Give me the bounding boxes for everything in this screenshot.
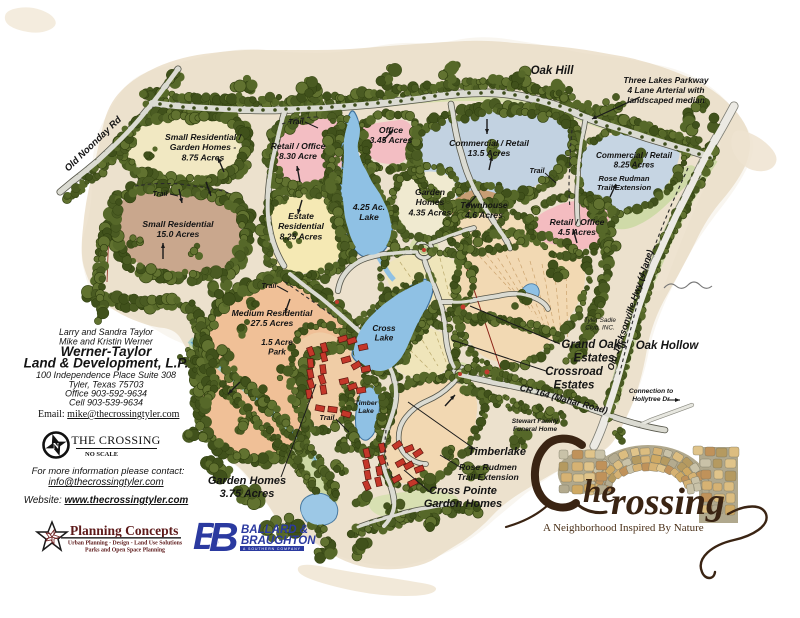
svg-text:NO SCALE: NO SCALE: [85, 451, 118, 458]
svg-text:N: N: [53, 441, 60, 451]
svg-text:Website: www.thecrossingtyler.: Website: www.thecrossingtyler.com: [24, 495, 189, 506]
svg-text:Trail: Trail: [288, 117, 304, 126]
svg-text:Townhouse4.6 Acres: Townhouse4.6 Acres: [460, 200, 508, 220]
svg-text:Tyler SadleClub, INC.: Tyler SadleClub, INC.: [584, 317, 616, 332]
svg-text:Trail: Trail: [529, 166, 545, 175]
svg-text:Planning Concepts: Planning Concepts: [70, 523, 178, 538]
svg-text:info@thecrossingtyler.com: info@thecrossingtyler.com: [48, 477, 163, 488]
svg-text:Trail: Trail: [319, 413, 335, 422]
svg-text:Cell 903-539-9634: Cell 903-539-9634: [69, 398, 143, 408]
svg-text:Oak Hollow: Oak Hollow: [636, 340, 700, 352]
svg-text:Trail: Trail: [152, 189, 168, 198]
svg-text:Land & Development, L.P.: Land & Development, L.P.: [24, 356, 189, 371]
svg-text:THE CROSSING: THE CROSSING: [71, 433, 160, 447]
svg-text:Email: mike@thecrossingtyler.c: Email: mike@thecrossingtyler.com: [38, 409, 180, 420]
svg-text:Connection toHollytree Dr: Connection toHollytree Dr: [629, 388, 673, 403]
svg-text:Oak Hill: Oak Hill: [531, 65, 575, 77]
svg-text:BRAUGHTON: BRAUGHTON: [241, 535, 316, 547]
svg-text:Urban Planning - Design -: Urban Planning - Design - Land Use Solut…: [68, 541, 183, 547]
svg-text:Larry and Sandra Taylor: Larry and Sandra Taylor: [59, 327, 154, 337]
svg-text:Stewart FamilyFuneral Home: Stewart FamilyFuneral Home: [512, 418, 559, 433]
svg-text:B: B: [209, 514, 239, 560]
svg-text:rossing: rossing: [611, 481, 725, 523]
svg-text:Cross PointeGarden Homes: Cross PointeGarden Homes: [424, 485, 502, 510]
svg-text:CrossLake: CrossLake: [372, 324, 396, 343]
svg-text:Rose RudmanTrail Extension: Rose RudmanTrail Extension: [597, 174, 652, 192]
svg-text:Timberlake: Timberlake: [468, 446, 526, 458]
svg-text:Three Lakes Parkway4 Lane Arte: Three Lakes Parkway4 Lane Arterial withl…: [623, 75, 709, 105]
svg-text:Trail: Trail: [261, 281, 277, 290]
svg-text:100 Independence Place Suite 3: 100 Independence Place Suite 308: [36, 370, 176, 380]
svg-text:A SOUTHERN COMPANY: A SOUTHERN COMPANY: [243, 547, 301, 551]
svg-text:Parks and Open Space Planning: Parks and Open Space Planning: [85, 548, 165, 554]
svg-text:A Neighborhood Inspired By Nat: A Neighborhood Inspired By Nature: [543, 522, 704, 534]
svg-text:Rose RudmenTrail Extension: Rose RudmenTrail Extension: [457, 462, 518, 482]
svg-text:For more information please co: For more information please contact:: [32, 465, 185, 476]
